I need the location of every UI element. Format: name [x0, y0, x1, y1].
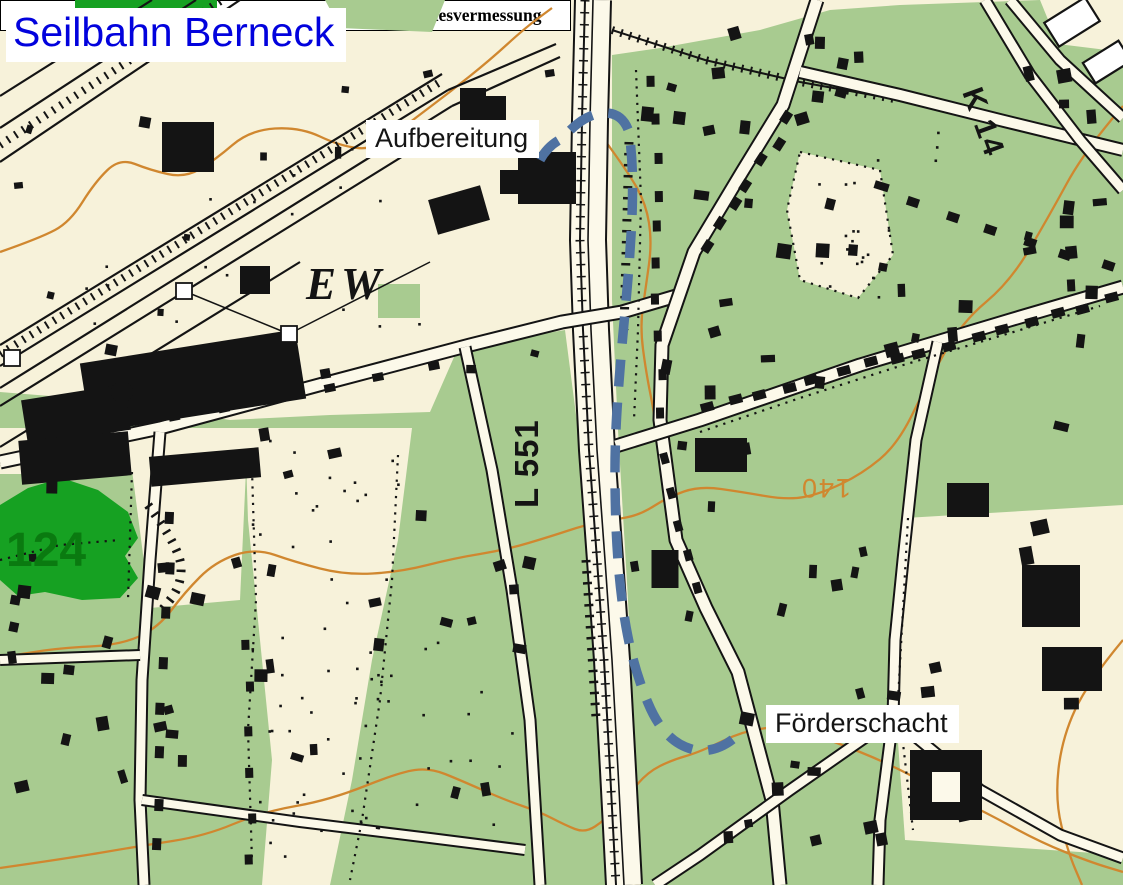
label-foerderschacht: Förderschacht — [766, 705, 959, 743]
label-forest-124: 124 — [6, 524, 86, 577]
topographic-map: EW L 551 K 14 140 124 — [0, 0, 1123, 885]
label-ew: EW — [305, 259, 386, 309]
map-title: Seilbahn Berneck — [6, 8, 346, 62]
map-stage: EW L 551 K 14 140 124 Seilbahn Berneck A… — [0, 0, 1123, 885]
label-aufbereitung: Aufbereitung — [366, 120, 539, 158]
label-contour-140: 140 — [800, 473, 851, 503]
label-l551: L 551 — [508, 419, 545, 508]
